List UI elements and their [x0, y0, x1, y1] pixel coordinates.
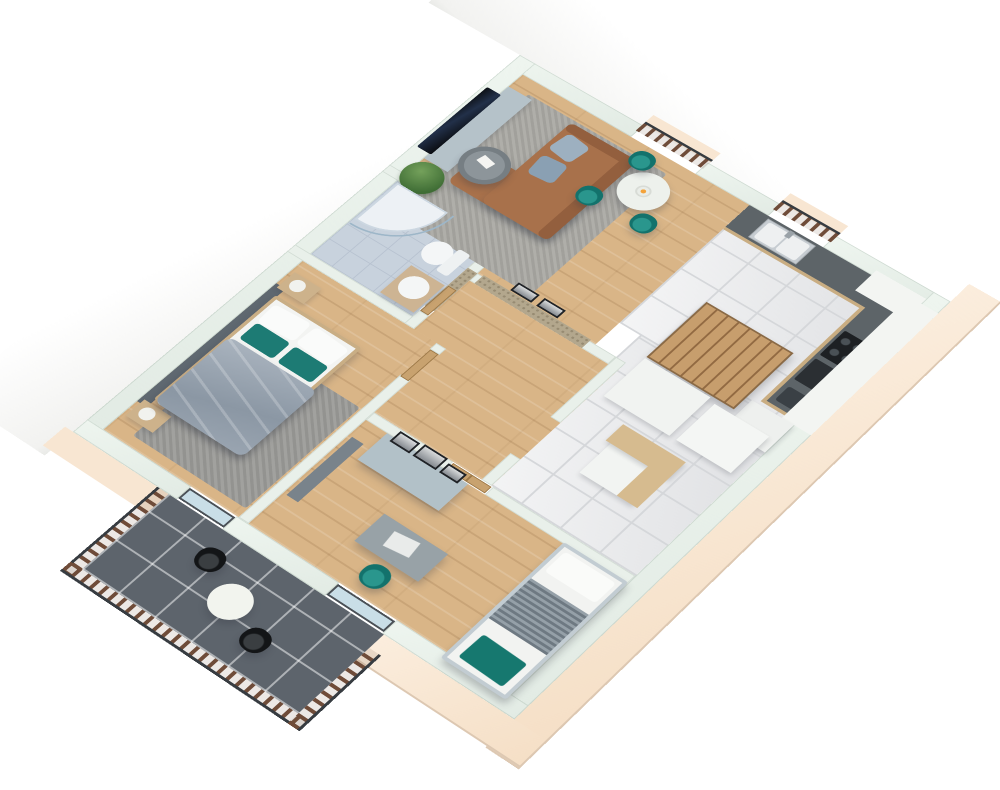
- floor-plan-render: [0, 0, 1000, 790]
- apartment-isometric-plan: [73, 55, 951, 719]
